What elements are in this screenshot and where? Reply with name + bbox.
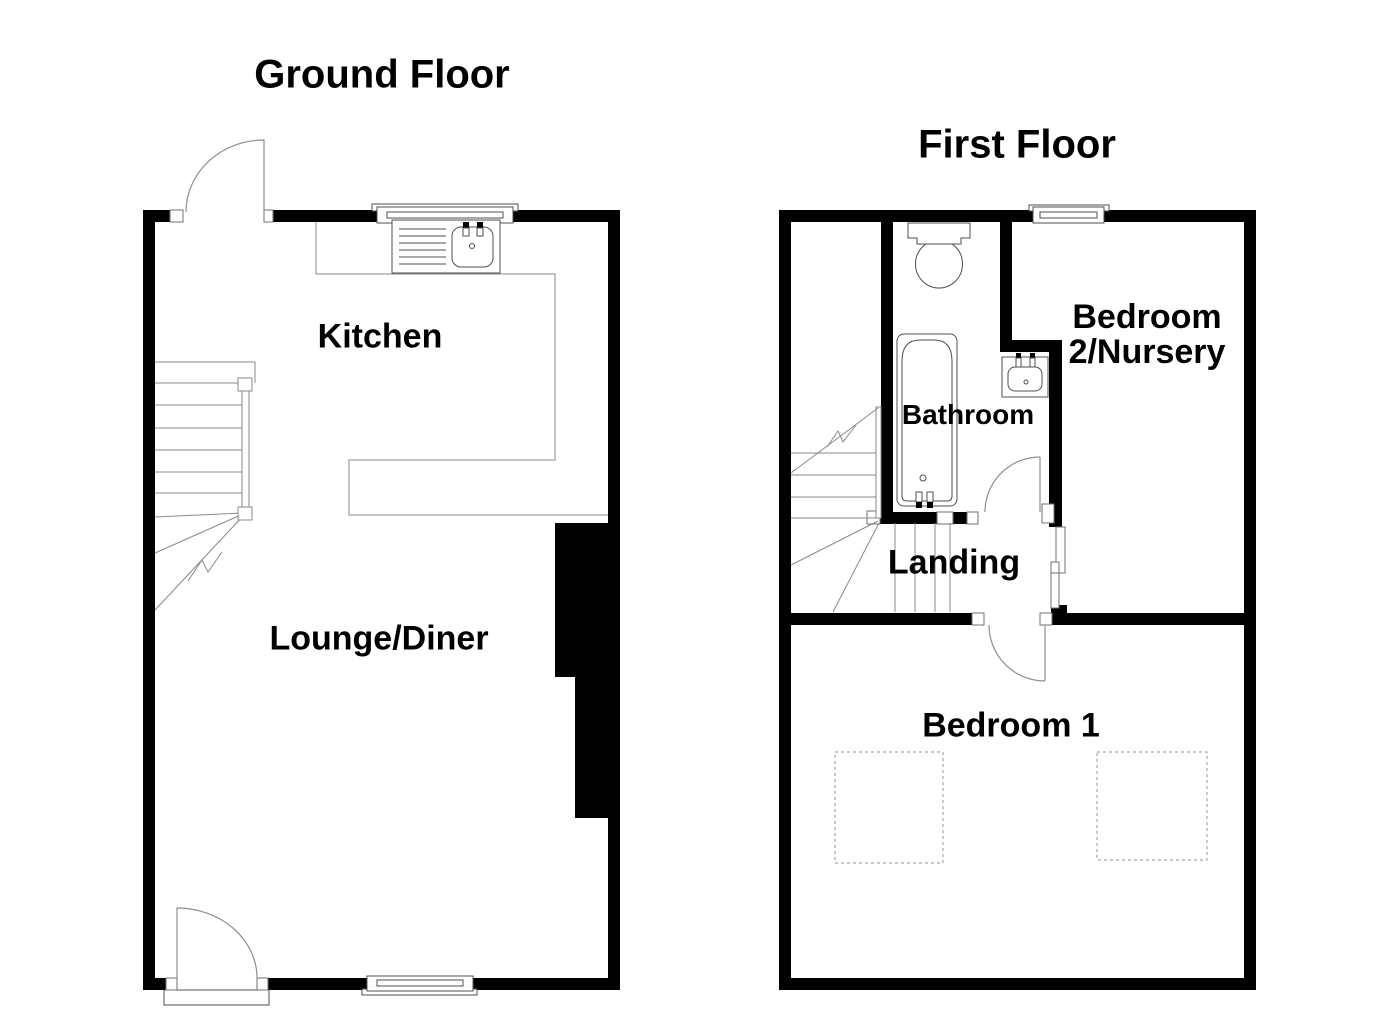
- bedroom2-window-icon: [1029, 205, 1109, 223]
- first-floor-title: First Floor: [918, 123, 1116, 168]
- bathroom-label: Bathroom: [902, 399, 1034, 431]
- lounge-diner-label: Lounge/Diner: [269, 620, 488, 659]
- ground-staircase-icon: [155, 362, 255, 610]
- bedroom1-door-icon: [989, 625, 1045, 681]
- bedroom1-dashed-area-right: [1097, 752, 1207, 860]
- back-door-icon: [170, 140, 273, 222]
- bedroom1-label: Bedroom 1: [922, 707, 1100, 746]
- landing-partition: [1051, 527, 1065, 608]
- landing-label: Landing: [888, 544, 1020, 583]
- toilet-icon: [908, 223, 970, 288]
- ground-floor-title: Ground Floor: [254, 53, 510, 98]
- bedroom2-label-line1: Bedroom: [1069, 300, 1226, 335]
- front-door-icon: [164, 908, 269, 1005]
- bathroom-door-icon: [985, 457, 1040, 512]
- bedroom2-label-line2: 2/Nursery: [1069, 335, 1226, 370]
- chimney-breast: [555, 523, 608, 818]
- lounge-window-icon: [362, 976, 477, 995]
- bedroom1-dashed-area-left: [835, 752, 943, 863]
- ground-floor-plan: [143, 140, 620, 1005]
- bedroom2-label: Bedroom 2/Nursery: [1069, 300, 1226, 370]
- floorplan-drawing: [0, 0, 1400, 1018]
- kitchen-label: Kitchen: [318, 318, 443, 357]
- wash-basin-icon: [1002, 353, 1048, 397]
- kitchen-sink-icon: [392, 220, 500, 273]
- floorplan-page: Ground Floor Kitchen Lounge/Diner First …: [0, 0, 1400, 1018]
